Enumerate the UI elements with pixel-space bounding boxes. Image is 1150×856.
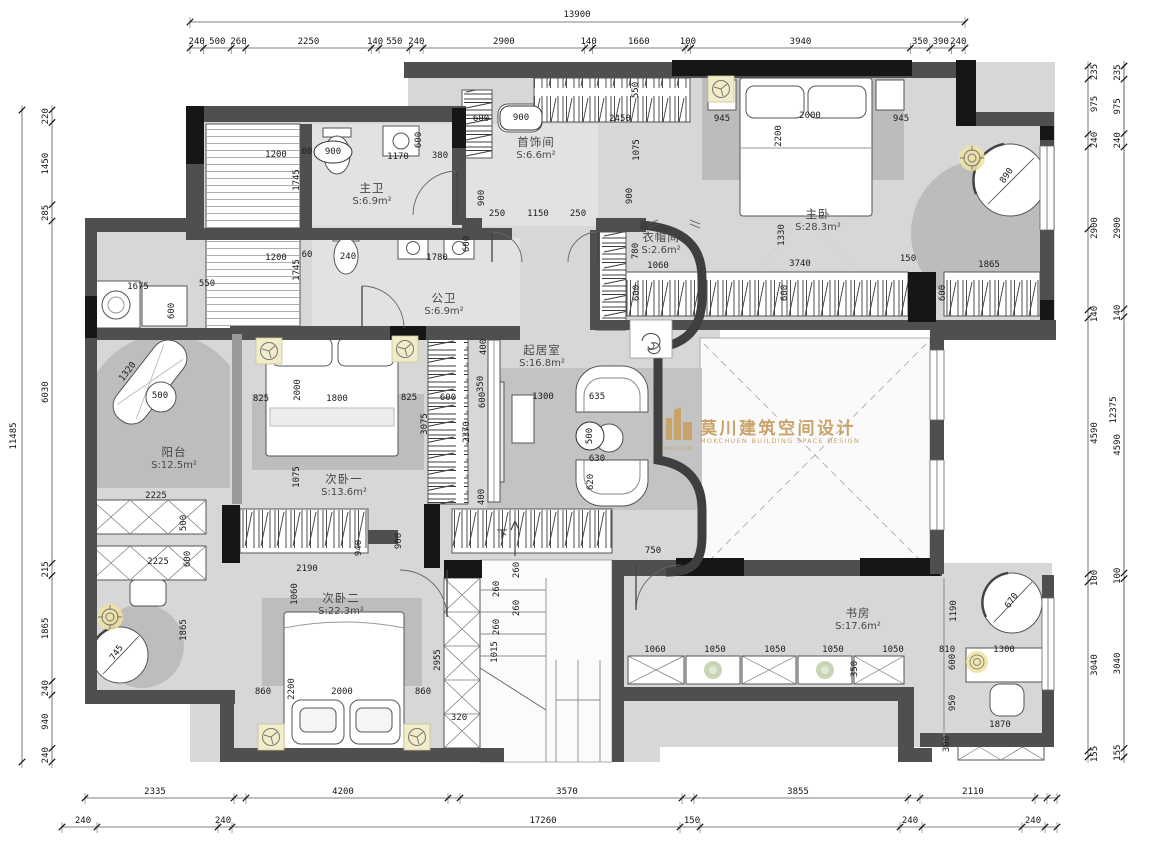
inner-dim: 950	[948, 695, 958, 711]
svg-text:140: 140	[367, 37, 383, 47]
floorplan-page: 1390024050026022501405502402900140166010…	[0, 0, 1150, 856]
watermark-en: MOKCHUEN BUILDING SPACE DESIGN	[700, 437, 860, 445]
svg-text:235: 235	[1113, 64, 1123, 80]
inner-dim: 2200	[774, 125, 784, 147]
inner-dim: 1745	[292, 169, 302, 191]
svg-text:240: 240	[902, 816, 918, 826]
svg-text:975: 975	[1090, 96, 1100, 112]
svg-text:12375: 12375	[1109, 396, 1119, 423]
inner-dim: 400	[479, 339, 489, 355]
inner-dim: 2000	[331, 687, 353, 697]
room-label: 首饰间S:6.6m²	[516, 136, 555, 162]
inner-dim: 500	[152, 391, 168, 401]
inner-dim: 900	[325, 147, 341, 157]
inner-dim: 250	[489, 209, 505, 219]
inner-dim: 60	[302, 147, 313, 157]
svg-text:350: 350	[912, 37, 928, 47]
inner-dim: 1050	[822, 645, 844, 655]
inner-dim: 1300	[993, 645, 1015, 655]
inner-dim: 630	[589, 454, 605, 464]
inner-dim: 550	[199, 279, 215, 289]
inner-dim: 600	[632, 285, 642, 301]
svg-text:940: 940	[41, 714, 51, 730]
svg-text:155: 155	[1090, 746, 1100, 762]
svg-text:140: 140	[581, 37, 597, 47]
inner-dim: 550	[631, 82, 641, 98]
inner-dim: 600	[414, 132, 424, 148]
svg-text:500: 500	[209, 37, 225, 47]
room-label: 公卫S:6.9m²	[424, 292, 463, 318]
svg-text:155: 155	[1113, 745, 1123, 761]
inner-dim: 1745	[292, 259, 302, 281]
svg-text:3040: 3040	[1113, 653, 1123, 675]
inner-dim: 900	[477, 190, 487, 206]
inner-dim: 600	[183, 551, 193, 567]
svg-text:220: 220	[41, 108, 51, 124]
inner-dim: 1060	[647, 261, 669, 271]
inner-dim: 750	[645, 546, 661, 556]
svg-text:11485: 11485	[9, 422, 19, 449]
inner-dim: 600	[440, 393, 456, 403]
inner-dim: 1050	[704, 645, 726, 655]
watermark-logo-text: MOKCHUEN	[662, 447, 692, 452]
svg-text:390: 390	[933, 37, 949, 47]
inner-dim: 1300	[532, 392, 554, 402]
inner-dim: 1060	[290, 583, 300, 605]
inner-dim: 1075	[292, 466, 302, 488]
inner-dim: 2225	[147, 557, 169, 567]
svg-text:215: 215	[41, 561, 51, 577]
svg-text:100: 100	[1113, 568, 1123, 584]
inner-dim: 1865	[978, 260, 1000, 270]
inner-dim: 1050	[882, 645, 904, 655]
svg-text:240: 240	[408, 37, 424, 47]
inner-dim: 600	[938, 285, 948, 301]
inner-dim: 900	[394, 533, 404, 549]
inner-dim: 860	[255, 687, 271, 697]
inner-dim: 825	[253, 394, 269, 404]
inner-dim: 1800	[326, 394, 348, 404]
svg-text:1660: 1660	[628, 37, 650, 47]
svg-text:2335: 2335	[144, 787, 166, 797]
svg-text:240: 240	[1090, 132, 1100, 148]
room-label: 次卧一S:13.6m²	[321, 473, 367, 499]
inner-dim: 320	[451, 713, 467, 723]
inner-dim: 860	[415, 687, 431, 697]
inner-dim: 600	[478, 392, 488, 408]
svg-text:100: 100	[1090, 570, 1100, 586]
room-label: 书房S:17.6m²	[835, 607, 881, 633]
svg-text:240: 240	[215, 816, 231, 826]
svg-text:2900: 2900	[1090, 217, 1100, 239]
inner-dim: 600	[780, 285, 790, 301]
svg-text:235: 235	[1090, 64, 1100, 80]
inner-dim: 900	[625, 188, 635, 204]
inner-dim: 1780	[426, 253, 448, 263]
inner-dim: 260	[492, 619, 502, 635]
inner-dim: 1060	[644, 645, 666, 655]
inner-dim: 2225	[145, 491, 167, 501]
inner-dim: 350	[850, 661, 860, 677]
svg-text:3570: 3570	[556, 787, 578, 797]
svg-text:13900: 13900	[563, 10, 590, 20]
inner-dim: 3740	[789, 259, 811, 269]
inner-dim: 500	[179, 515, 189, 531]
svg-text:2110: 2110	[962, 787, 984, 797]
inner-dim: 2955	[433, 649, 443, 671]
inner-dim: 600	[167, 303, 177, 319]
room-label: 主卧S:28.3m²	[795, 208, 841, 234]
inner-dim: 400	[477, 489, 487, 505]
svg-text:240: 240	[950, 37, 966, 47]
inner-dim: 1330	[777, 224, 787, 246]
room-label: 次卧二S:22.3m²	[318, 592, 364, 618]
inner-dim: 1200	[265, 150, 287, 160]
inner-dim: 150	[900, 254, 916, 264]
svg-text:4200: 4200	[332, 787, 354, 797]
svg-text:240: 240	[75, 816, 91, 826]
inner-dim: 780	[631, 243, 641, 259]
svg-text:150: 150	[684, 816, 700, 826]
dimension-chains: 1390024050026022501405502402900140166010…	[0, 0, 1150, 856]
svg-text:140: 140	[1113, 305, 1123, 321]
room-label: 阳台S:12.5m²	[151, 446, 197, 472]
svg-text:3940: 3940	[790, 37, 812, 47]
svg-text:4590: 4590	[1113, 434, 1123, 456]
inner-dim: 3075	[420, 413, 430, 435]
svg-text:2900: 2900	[493, 37, 515, 47]
svg-text:240: 240	[1025, 816, 1041, 826]
inner-dim: 2000	[293, 379, 303, 401]
svg-text:6030: 6030	[41, 381, 51, 403]
svg-text:17260: 17260	[529, 816, 556, 826]
inner-dim: 300	[942, 736, 952, 752]
inner-dim: 240	[340, 252, 356, 262]
svg-text:3040: 3040	[1090, 654, 1100, 676]
svg-text:260: 260	[230, 37, 246, 47]
inner-dim: 945	[714, 114, 730, 124]
inner-dim: 1170	[387, 152, 409, 162]
inner-dim: 620	[586, 474, 596, 490]
inner-dim: 2200	[287, 678, 297, 700]
stair-direction-label: 下	[497, 526, 508, 542]
svg-text:2250: 2250	[298, 37, 320, 47]
inner-dim: 1200	[265, 253, 287, 263]
inner-dim: 900	[513, 113, 529, 123]
inner-dim: 600	[948, 654, 958, 670]
inner-dim: 1015	[490, 641, 500, 663]
inner-dim: 1050	[764, 645, 786, 655]
inner-dim: 260	[512, 600, 522, 616]
inner-dim: 260	[492, 581, 502, 597]
room-label: 起居室S:16.8m²	[519, 344, 565, 370]
svg-text:240: 240	[1113, 132, 1123, 148]
room-label: 主卫S:6.9m²	[352, 182, 391, 208]
svg-text:240: 240	[41, 747, 51, 763]
svg-text:240: 240	[189, 37, 205, 47]
svg-text:285: 285	[41, 205, 51, 221]
inner-dim: 2370	[462, 421, 472, 443]
inner-dim: 945	[893, 114, 909, 124]
inner-dim: 1865	[179, 619, 189, 641]
inner-dim: 600	[473, 114, 489, 124]
inner-dim: 1150	[527, 209, 549, 219]
inner-dim: 260	[512, 562, 522, 578]
svg-text:140: 140	[1090, 306, 1100, 322]
svg-text:550: 550	[386, 37, 402, 47]
svg-text:100: 100	[680, 37, 696, 47]
inner-dim: 500	[585, 428, 595, 444]
inner-dim: 825	[401, 393, 417, 403]
room-label: 衣帽间S:2.6m²	[641, 231, 680, 257]
inner-dim: 1870	[989, 720, 1011, 730]
svg-text:4590: 4590	[1090, 422, 1100, 444]
inner-dim: 1190	[949, 600, 959, 622]
inner-dim: 2450	[609, 114, 631, 124]
inner-dim: 635	[589, 392, 605, 402]
inner-dim: 1675	[127, 282, 149, 292]
inner-dim: 350	[476, 376, 486, 392]
inner-dim: 380	[432, 151, 448, 161]
svg-text:3855: 3855	[787, 787, 809, 797]
inner-dim: 60	[302, 250, 313, 260]
svg-text:240: 240	[41, 680, 51, 696]
watermark-cn: 莫川建筑空间设计	[700, 414, 856, 439]
inner-dim: 940	[354, 540, 364, 556]
inner-dim: 600	[462, 236, 472, 252]
inner-dim: 1075	[632, 139, 642, 161]
inner-dim: 250	[570, 209, 586, 219]
watermark-logo-icon	[662, 406, 696, 446]
inner-dim: 2000	[799, 111, 821, 121]
svg-text:2900: 2900	[1113, 217, 1123, 239]
svg-text:1450: 1450	[41, 153, 51, 175]
svg-text:975: 975	[1113, 98, 1123, 114]
svg-text:1865: 1865	[41, 618, 51, 640]
inner-dim: 2190	[296, 564, 318, 574]
